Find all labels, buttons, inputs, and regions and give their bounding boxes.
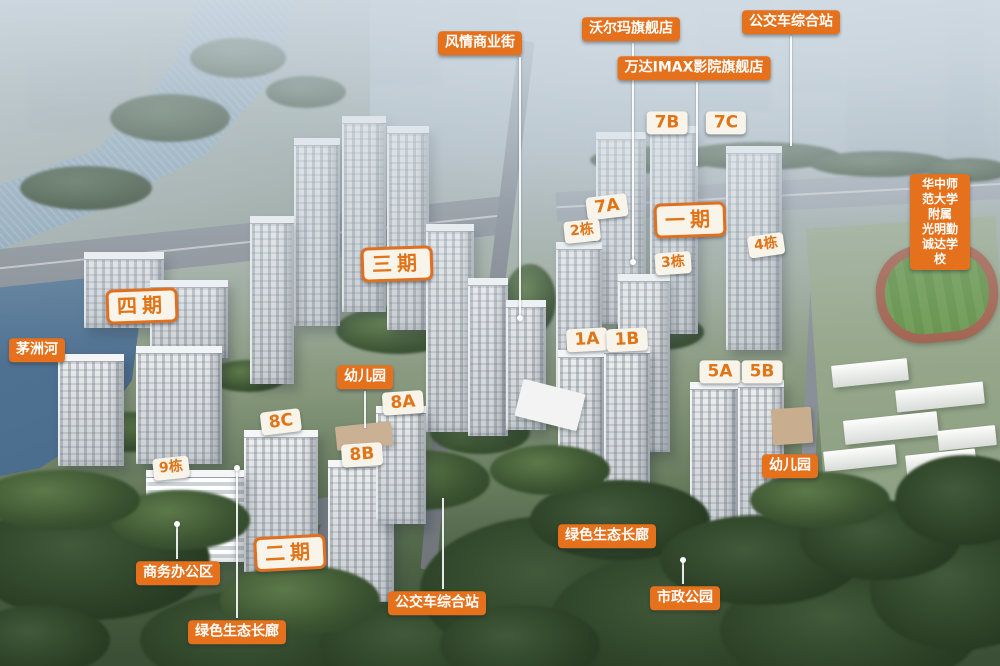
aerial-masterplan-rendering: 风情商业街沃尔玛旗舰店公交车综合站万达IMAX影院旗舰店华中师范大学附属 光明勤…	[0, 0, 1000, 666]
label-business-office: 商务办公区	[136, 561, 220, 585]
label-maozhou-river: 茅洲河	[9, 338, 65, 362]
leader-line-kindergarten-west	[364, 391, 366, 428]
label-tower-8b: 8B	[341, 442, 383, 468]
label-tower-8c: 8C	[260, 408, 303, 436]
leader-line-bus-terminal-north	[790, 36, 792, 146]
label-phase-4: 四期	[105, 287, 178, 324]
label-phase-1: 一期	[653, 201, 726, 238]
leader-dot-municipal-park	[680, 557, 686, 563]
label-tower-7b: 7B	[647, 111, 688, 134]
label-fengqing-street: 风情商业街	[438, 31, 522, 55]
leader-line-municipal-park	[682, 560, 684, 584]
label-green-corridor-sw: 绿色生态长廊	[188, 620, 286, 644]
label-tower-5b: 5B	[742, 360, 783, 383]
leader-dot-green-corridor-sw	[234, 465, 240, 471]
label-municipal-park: 市政公园	[650, 586, 720, 610]
leader-line-green-corridor-sw	[236, 468, 238, 618]
label-tower-5a: 5A	[700, 360, 741, 383]
label-phase-2: 二期	[253, 534, 327, 573]
leader-dot-fengqing-street	[517, 315, 523, 321]
label-tower-3: 3栋	[654, 251, 691, 275]
label-ccnu-school: 华中师范大学附属 光明勤诚达学校	[910, 174, 970, 270]
leader-dot-business-office	[174, 521, 180, 527]
leader-dot-walmart-flagship	[630, 259, 636, 265]
annotation-layer: 风情商业街沃尔玛旗舰店公交车综合站万达IMAX影院旗舰店华中师范大学附属 光明勤…	[0, 0, 1000, 666]
leader-line-fengqing-street	[519, 57, 521, 318]
label-wanda-imax: 万达IMAX影院旗舰店	[618, 56, 771, 80]
label-bus-terminal-north: 公交车综合站	[742, 10, 840, 34]
label-phase-3: 三期	[360, 245, 433, 282]
label-kindergarten-west: 幼儿园	[337, 365, 393, 389]
leader-line-wanda-imax	[696, 82, 698, 166]
label-walmart-flagship: 沃尔玛旗舰店	[582, 17, 680, 41]
label-tower-2: 2栋	[563, 218, 601, 243]
label-tower-1b: 1B	[606, 327, 648, 352]
label-kindergarten-east: 幼儿园	[762, 454, 818, 478]
label-tower-8a: 8A	[382, 390, 425, 416]
label-tower-7a: 7A	[585, 193, 629, 221]
label-tower-9: 9栋	[152, 455, 190, 480]
leader-line-business-office	[176, 524, 178, 559]
label-green-corridor-east: 绿色生态长廊	[558, 524, 656, 548]
label-tower-4: 4栋	[747, 232, 785, 258]
label-bus-terminal-south: 公交车综合站	[388, 591, 486, 615]
label-tower-7c: 7C	[706, 111, 746, 134]
leader-line-bus-terminal-south	[442, 498, 444, 589]
label-tower-1a: 1A	[566, 327, 608, 352]
